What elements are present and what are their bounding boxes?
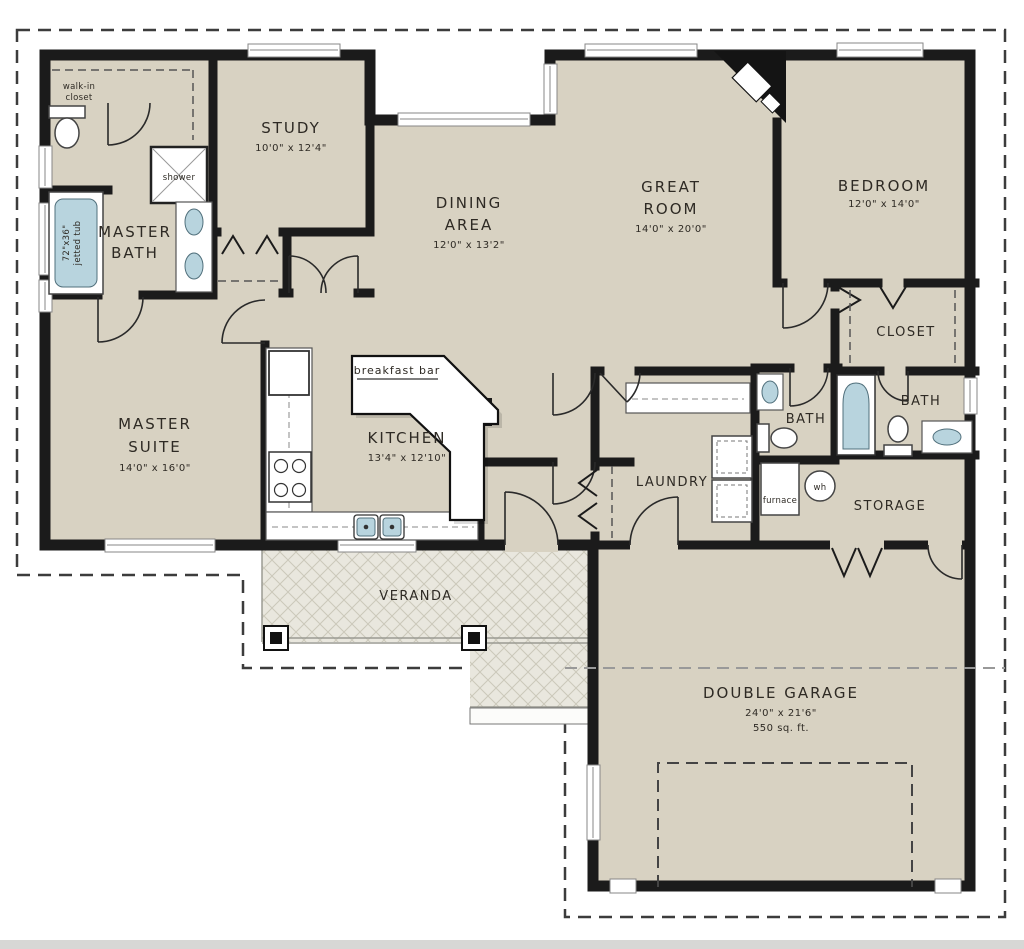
label-dining-line2: AREA xyxy=(445,216,493,234)
label-kitchen: KITCHEN xyxy=(368,429,447,447)
label-master-suite-line1: MASTER xyxy=(118,415,192,433)
window-recess-side xyxy=(544,64,557,114)
window-bath-right xyxy=(964,378,977,414)
label-breakfast-bar: breakfast bar xyxy=(354,364,441,377)
label-bath-right: BATH xyxy=(901,394,942,409)
window-bedroom-top xyxy=(837,43,923,57)
stove xyxy=(269,452,311,502)
veranda-step xyxy=(470,708,592,724)
dims-dining: 12'0" x 13'2" xyxy=(433,240,505,251)
window-study-top xyxy=(248,44,340,57)
dims-study: 10'0" x 12'4" xyxy=(255,143,327,154)
label-dining-line1: DINING xyxy=(436,194,502,212)
label-water-heater: wh xyxy=(814,483,827,493)
vanity-bath-right xyxy=(922,421,972,453)
label-garage: DOUBLE GARAGE xyxy=(703,684,859,702)
vanity-master xyxy=(176,202,212,292)
label-laundry: LAUNDRY xyxy=(636,475,708,490)
dryer xyxy=(712,480,752,522)
area-garage: 550 sq. ft. xyxy=(753,723,809,734)
window-garage-left xyxy=(587,765,600,840)
dims-master-suite: 14'0" x 16'0" xyxy=(119,463,191,474)
bath-center-sink xyxy=(757,374,783,410)
label-great-room-line2: ROOM xyxy=(644,200,699,218)
dims-bedroom: 12'0" x 14'0" xyxy=(848,199,920,210)
label-walkin-line2: closet xyxy=(65,93,92,103)
refrigerator xyxy=(269,351,309,395)
furnace-unit xyxy=(761,463,799,515)
window-kitchen-sink xyxy=(338,539,416,552)
window-mastersuite-bottom xyxy=(105,539,215,552)
label-veranda: VERANDA xyxy=(379,589,452,604)
window-masterbath-left-1 xyxy=(39,146,52,188)
garage-door-jamb-right xyxy=(935,879,961,893)
label-closet: CLOSET xyxy=(876,325,936,340)
label-shower: shower xyxy=(163,173,196,183)
bathtub-right xyxy=(837,375,875,455)
label-walkin-line1: walk-in xyxy=(63,82,95,92)
window-greatroom-top xyxy=(585,44,697,57)
label-study: STUDY xyxy=(261,119,321,137)
dims-kitchen: 13'4" x 12'10" xyxy=(368,453,447,464)
label-bath-center: BATH xyxy=(786,412,827,427)
label-storage: STORAGE xyxy=(854,499,926,514)
label-master-bath-line2: BATH xyxy=(111,244,159,262)
floor-plan-page: walk-in closet MASTER BATH shower 72"x36… xyxy=(0,0,1024,949)
label-bedroom: BEDROOM xyxy=(838,177,930,195)
floor-plan-drawing: walk-in closet MASTER BATH shower 72"x36… xyxy=(0,0,1024,949)
label-tub-line2: jetted tub xyxy=(73,221,83,267)
laundry-counter xyxy=(626,383,750,413)
dims-great-room: 14'0" x 20'0" xyxy=(635,224,707,235)
label-master-bath-line1: MASTER xyxy=(98,223,172,241)
dims-garage: 24'0" x 21'6" xyxy=(745,708,817,719)
post xyxy=(462,626,486,650)
label-furnace: furnace xyxy=(763,496,797,506)
label-master-suite-line2: SUITE xyxy=(128,438,182,456)
garage-door-jamb-left xyxy=(610,879,636,893)
window-dining-recess xyxy=(398,113,530,126)
label-great-room-line1: GREAT xyxy=(641,178,701,196)
bottom-strip xyxy=(0,940,1024,949)
label-tub-line1: 72"x36" xyxy=(62,225,72,262)
post xyxy=(264,626,288,650)
washer xyxy=(712,436,752,478)
